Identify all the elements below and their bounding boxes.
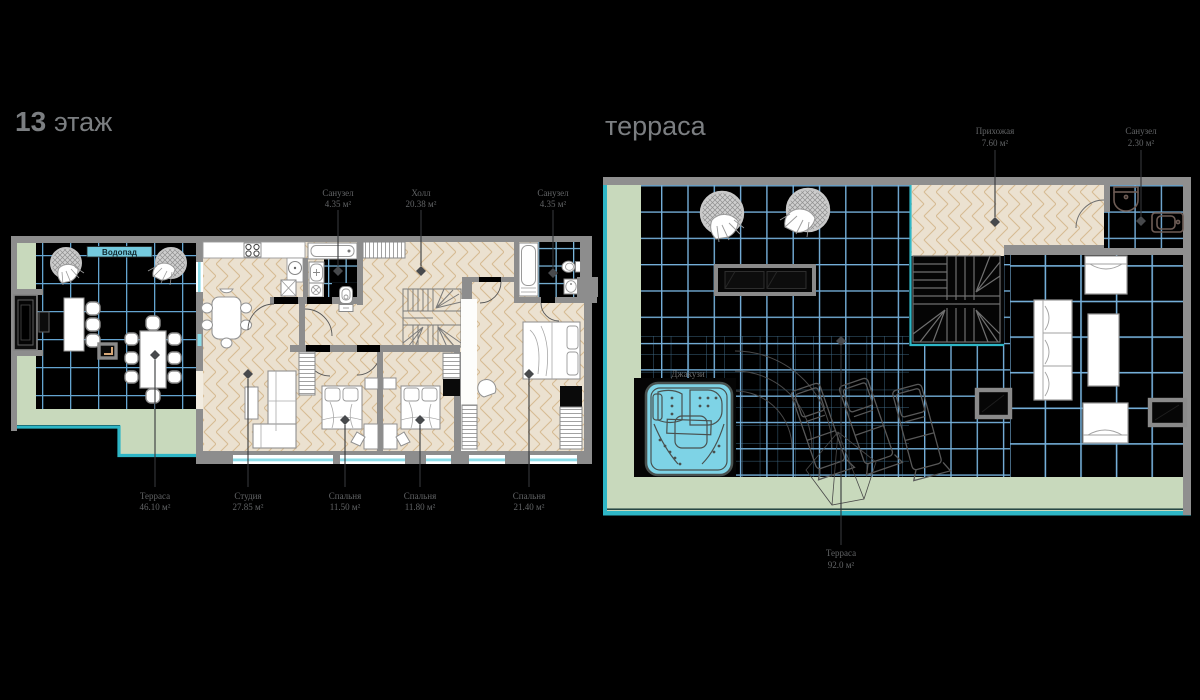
svg-text:Терраса: Терраса [140,491,170,501]
svg-text:Водопад: Водопад [102,248,137,257]
svg-text:Спальня: Спальня [329,491,361,501]
svg-text:Санузел: Санузел [537,188,569,198]
svg-text:Спальня: Спальня [404,491,436,501]
svg-text:20.38 м²: 20.38 м² [406,199,437,209]
svg-text:46.10 м²: 46.10 м² [140,502,171,512]
svg-text:13 этаж: 13 этаж [15,106,112,137]
svg-text:Холл: Холл [411,188,431,198]
svg-text:Джакузи: Джакузи [671,369,705,379]
svg-text:21.40 м²: 21.40 м² [514,502,545,512]
svg-text:11.80 м²: 11.80 м² [405,502,436,512]
svg-text:4.35 м²: 4.35 м² [540,199,567,209]
svg-text:Терраса: Терраса [826,548,856,558]
svg-text:11.50 м²: 11.50 м² [330,502,361,512]
svg-text:терраса: терраса [605,111,707,141]
svg-text:4.35 м²: 4.35 м² [325,199,352,209]
svg-text:Прихожая: Прихожая [976,126,1015,136]
svg-text:92.0 м²: 92.0 м² [828,560,855,570]
svg-text:Студия: Студия [234,491,261,501]
svg-text:Санузел: Санузел [322,188,354,198]
svg-text:Спальня: Спальня [513,491,545,501]
svg-text:7.60 м²: 7.60 м² [982,138,1009,148]
svg-text:27.85 м²: 27.85 м² [233,502,264,512]
svg-text:Санузел: Санузел [1125,126,1157,136]
svg-text:2.30 м²: 2.30 м² [1128,138,1155,148]
